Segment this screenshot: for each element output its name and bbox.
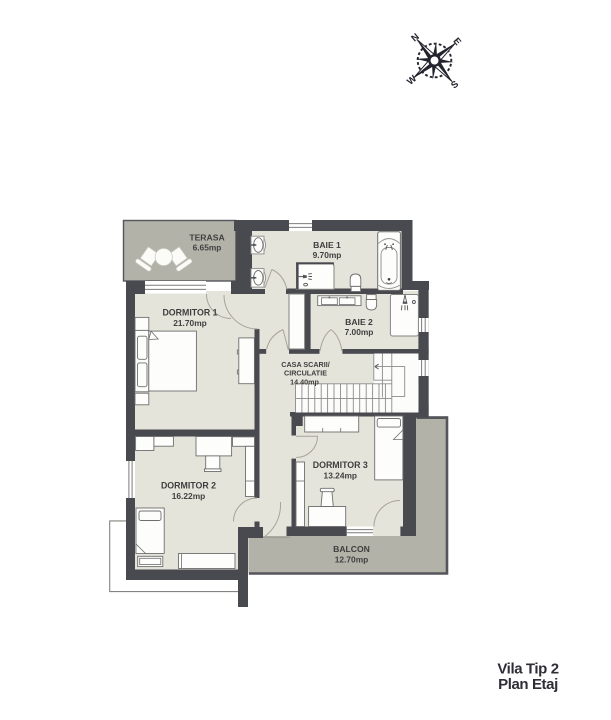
svg-text:DORMITOR 3: DORMITOR 3 (313, 460, 368, 470)
svg-text:9.70mp: 9.70mp (313, 250, 342, 260)
svg-text:TERASA: TERASA (189, 233, 224, 243)
svg-text:DORMITOR 2: DORMITOR 2 (161, 481, 216, 491)
svg-text:Plan Etaj: Plan Etaj (498, 676, 558, 693)
svg-text:BAIE 1: BAIE 1 (313, 240, 341, 250)
svg-text:CIRCULATIE: CIRCULATIE (284, 369, 327, 378)
svg-text:14.40mp: 14.40mp (290, 378, 319, 387)
svg-text:6.65mp: 6.65mp (193, 243, 222, 253)
svg-text:7.00mp: 7.00mp (345, 327, 374, 337)
svg-text:Vila Tip 2: Vila Tip 2 (497, 661, 558, 678)
svg-text:DORMITOR 1: DORMITOR 1 (162, 308, 217, 318)
svg-text:12.70mp: 12.70mp (335, 555, 369, 565)
svg-text:21.70mp: 21.70mp (173, 318, 207, 328)
svg-text:BALCON: BALCON (333, 544, 370, 554)
svg-text:BAIE 2: BAIE 2 (345, 317, 373, 327)
svg-text:13.24mp: 13.24mp (324, 470, 358, 480)
svg-text:16.22mp: 16.22mp (172, 491, 206, 501)
